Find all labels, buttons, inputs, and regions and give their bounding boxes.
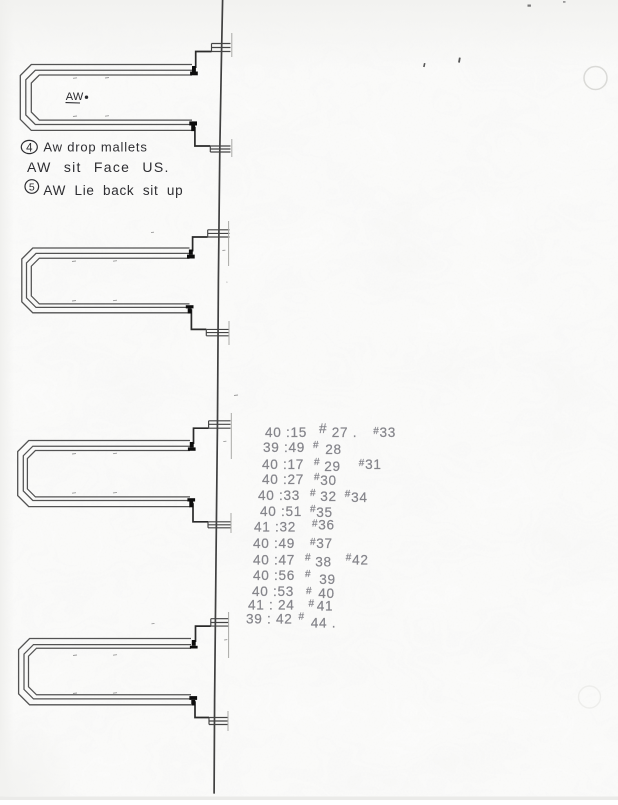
svg-text:AW: AW (66, 91, 84, 103)
svg-text:40 :49#37: 40 :49#37 (253, 536, 333, 551)
svg-text:AW sit Face US.: AW sit Face US. (27, 159, 170, 175)
svg-text:AW Lie back sit up: AW Lie back sit up (43, 183, 183, 198)
svg-text:4: 4 (26, 142, 33, 154)
svg-text:41 :32#36: 41 :32#36 (254, 518, 335, 535)
svg-text:Aw drop mallets: Aw drop mallets (43, 140, 147, 155)
svg-text:39 :49#28: 39 :49#28 (263, 440, 342, 457)
svg-text:5: 5 (29, 182, 35, 194)
svg-text:40 :27#30: 40 :27#30 (262, 472, 337, 488)
